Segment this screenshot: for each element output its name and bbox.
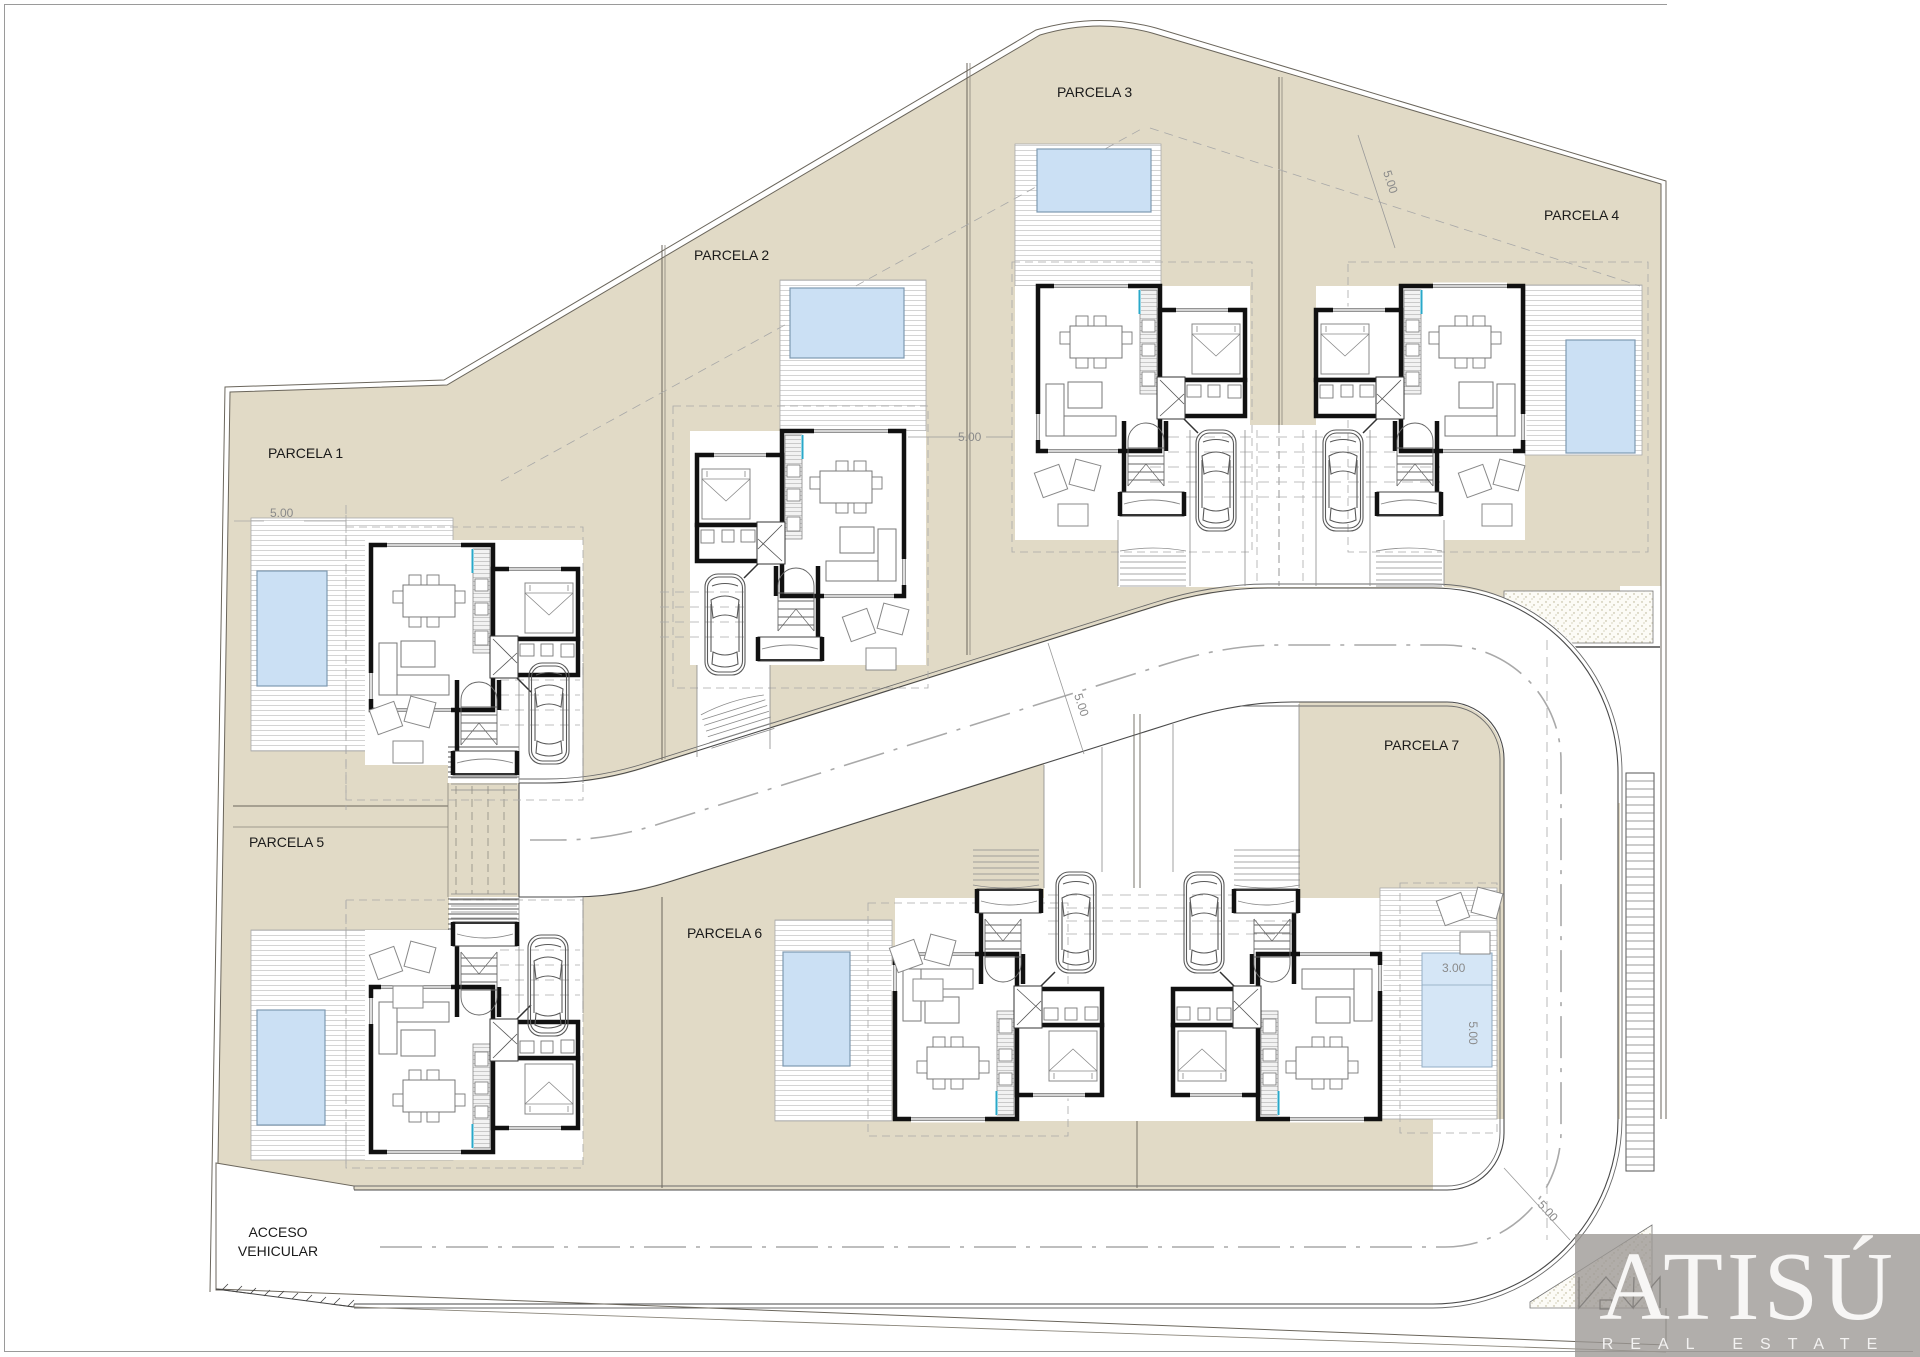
svg-text:PARCELA 7: PARCELA 7 <box>1384 737 1459 753</box>
svg-text:5.00: 5.00 <box>270 506 294 520</box>
svg-text:ATISÚ: ATISÚ <box>1599 1233 1897 1341</box>
svg-text:3.00: 3.00 <box>1442 961 1466 975</box>
svg-text:PARCELA 1: PARCELA 1 <box>268 445 343 461</box>
svg-text:PARCELA 2: PARCELA 2 <box>694 247 769 263</box>
svg-text:REAL ESTATE: REAL ESTATE <box>1602 1336 1895 1353</box>
svg-text:VEHICULAR: VEHICULAR <box>238 1243 318 1259</box>
svg-text:PARCELA 3: PARCELA 3 <box>1057 84 1132 100</box>
svg-text:5.00: 5.00 <box>1466 1021 1480 1045</box>
svg-text:PARCELA 6: PARCELA 6 <box>687 925 762 941</box>
svg-text:PARCELA 4: PARCELA 4 <box>1544 207 1619 223</box>
svg-text:PARCELA 5: PARCELA 5 <box>249 834 324 850</box>
svg-text:ACCESO: ACCESO <box>248 1224 307 1240</box>
